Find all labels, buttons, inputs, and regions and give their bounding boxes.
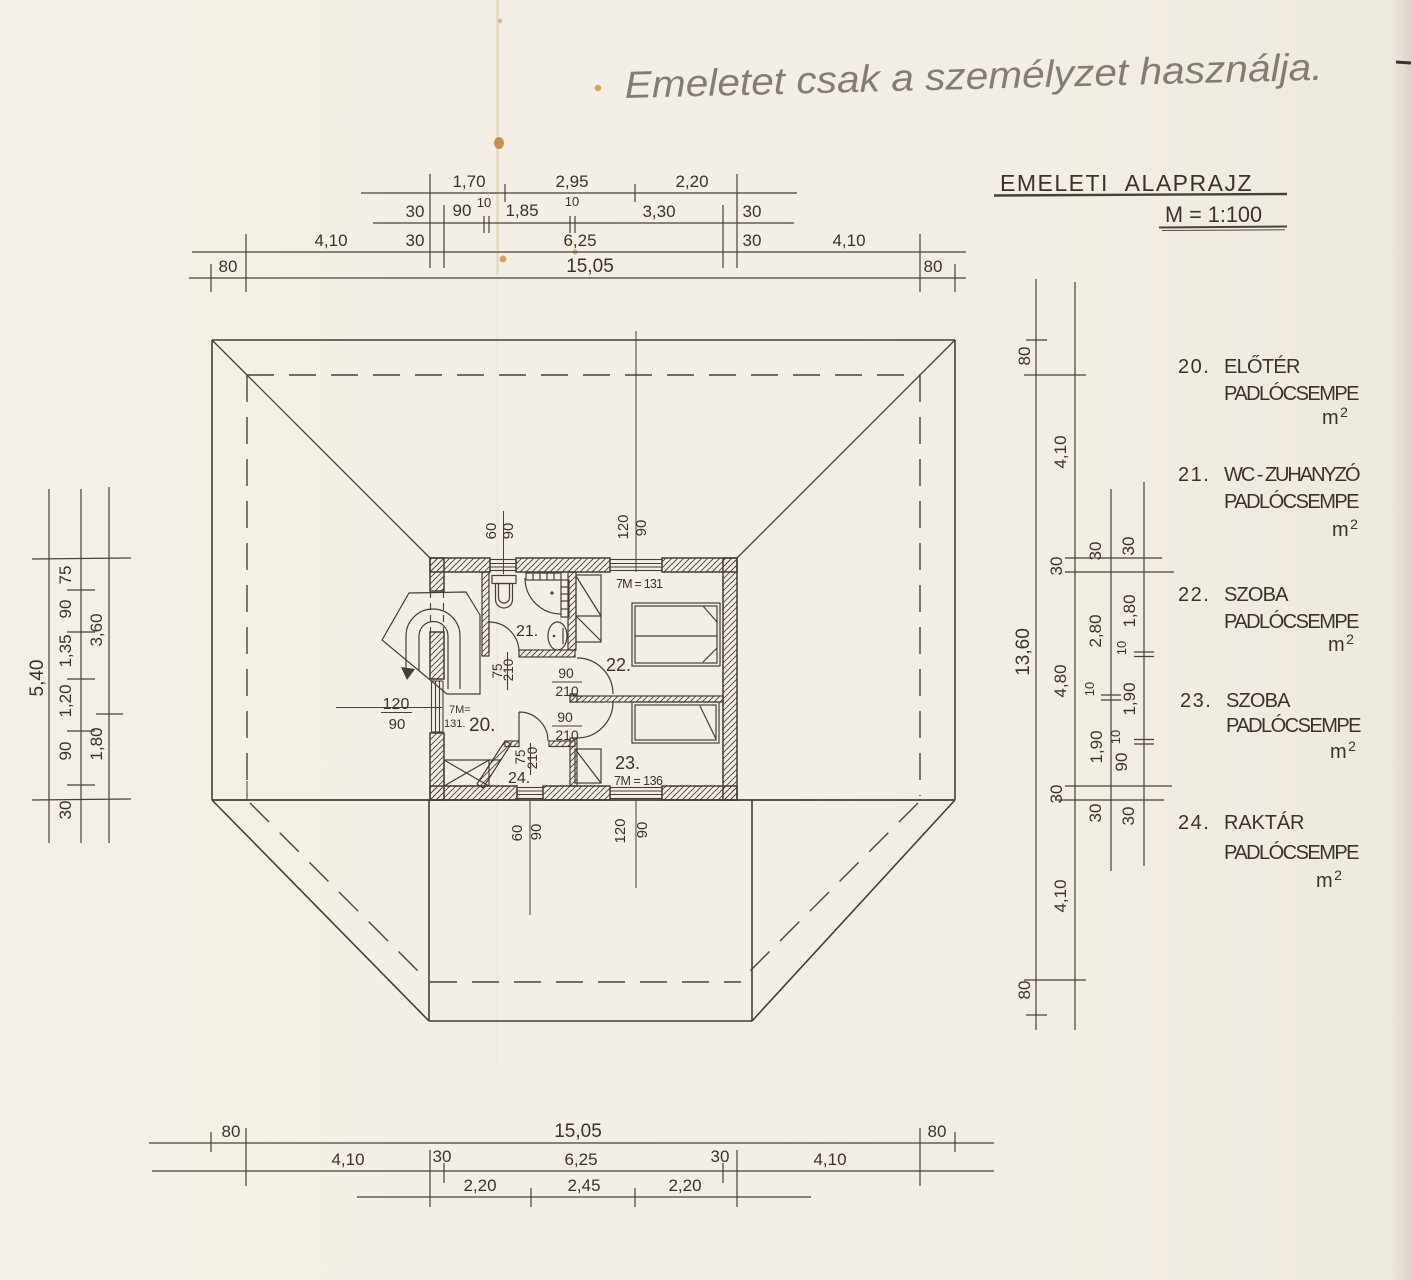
- svg-text:2,95: 2,95: [555, 172, 588, 191]
- svg-text:60: 60: [483, 523, 500, 540]
- svg-text:7M = 136: 7M = 136: [614, 774, 663, 788]
- svg-text:90: 90: [56, 742, 75, 761]
- svg-text:4,80: 4,80: [1051, 664, 1070, 697]
- svg-text:20.: 20.: [1178, 356, 1210, 378]
- svg-text:23.: 23.: [615, 753, 640, 773]
- svg-text:1,90: 1,90: [1087, 730, 1106, 763]
- svg-text:PADLÓCSEMPE: PADLÓCSEMPE: [1224, 382, 1361, 405]
- svg-text:10: 10: [1108, 730, 1123, 744]
- svg-text:6,25: 6,25: [564, 1150, 597, 1169]
- svg-text:3,30: 3,30: [642, 202, 675, 221]
- svg-text:SZOBA: SZOBA: [1224, 584, 1290, 606]
- svg-text:5,40: 5,40: [27, 660, 48, 697]
- svg-text:75: 75: [56, 566, 75, 585]
- svg-text:1,70: 1,70: [452, 172, 485, 191]
- svg-text:90: 90: [634, 822, 651, 839]
- svg-text:10: 10: [1082, 682, 1097, 696]
- svg-text:10: 10: [477, 195, 491, 210]
- svg-text:13,60: 13,60: [1013, 628, 1034, 676]
- svg-text:PADLÓCSEMPE: PADLÓCSEMPE: [1224, 610, 1361, 633]
- svg-text:90: 90: [633, 520, 650, 537]
- svg-text:4,10: 4,10: [813, 1150, 846, 1169]
- svg-text:RAKTÁR: RAKTÁR: [1224, 811, 1306, 834]
- svg-text:210: 210: [501, 659, 516, 682]
- svg-text:M = 1:100: M = 1:100: [1165, 202, 1262, 227]
- svg-text:210: 210: [525, 747, 540, 770]
- svg-text:30: 30: [406, 202, 425, 221]
- svg-text:90: 90: [1112, 753, 1131, 772]
- svg-text:2,80: 2,80: [1086, 614, 1105, 647]
- svg-text:80: 80: [1015, 981, 1034, 1000]
- svg-text:4,10: 4,10: [314, 231, 347, 250]
- svg-text:80: 80: [924, 257, 943, 276]
- svg-text:30: 30: [1086, 804, 1105, 823]
- svg-text:1,90: 1,90: [1120, 682, 1139, 715]
- svg-text:10: 10: [565, 194, 579, 209]
- svg-text:1,35: 1,35: [56, 634, 75, 667]
- svg-text:1,80: 1,80: [1120, 594, 1139, 627]
- svg-text:2,20: 2,20: [668, 1176, 701, 1195]
- svg-text:30: 30: [1047, 785, 1066, 804]
- svg-text:90: 90: [453, 201, 472, 220]
- svg-text:30: 30: [743, 202, 762, 221]
- svg-text:4,10: 4,10: [1051, 435, 1070, 468]
- svg-text:15,05: 15,05: [566, 256, 614, 277]
- svg-text:80: 80: [222, 1122, 241, 1141]
- svg-text:6,25: 6,25: [563, 231, 596, 250]
- svg-text:90: 90: [558, 665, 574, 681]
- svg-text:SZOBA: SZOBA: [1226, 690, 1292, 712]
- svg-text:PADLÓCSEMPE: PADLÓCSEMPE: [1226, 714, 1363, 737]
- svg-text:120: 120: [615, 514, 632, 539]
- svg-text:20.: 20.: [469, 715, 495, 736]
- svg-text:ELŐTÉR: ELŐTÉR: [1224, 355, 1302, 378]
- svg-text:4,10: 4,10: [331, 1150, 364, 1169]
- svg-text:2,45: 2,45: [567, 1176, 600, 1195]
- svg-text:60: 60: [509, 825, 526, 842]
- svg-text:23.: 23.: [1180, 690, 1212, 712]
- svg-text:PADLÓCSEMPE: PADLÓCSEMPE: [1224, 490, 1361, 513]
- svg-text:80: 80: [928, 1122, 947, 1141]
- svg-text:1,80: 1,80: [87, 727, 106, 760]
- svg-text:90: 90: [500, 523, 517, 540]
- svg-text:21.: 21.: [516, 623, 538, 640]
- svg-text:24.: 24.: [508, 770, 530, 787]
- svg-text:WC - ZUHANYZÓ: WC - ZUHANYZÓ: [1224, 463, 1362, 486]
- svg-text:PADLÓCSEMPE: PADLÓCSEMPE: [1224, 841, 1361, 864]
- svg-text:10: 10: [1114, 641, 1129, 655]
- svg-text:3,60: 3,60: [87, 613, 106, 646]
- svg-text:90: 90: [56, 600, 75, 619]
- svg-text:22.: 22.: [1178, 584, 1210, 606]
- svg-text:4,10: 4,10: [1051, 879, 1070, 912]
- svg-text:21.: 21.: [1178, 464, 1210, 486]
- svg-text:24.: 24.: [1178, 812, 1210, 834]
- svg-text:2,20: 2,20: [675, 172, 708, 191]
- svg-text:1,85: 1,85: [505, 201, 538, 220]
- svg-text:30: 30: [743, 231, 762, 250]
- svg-text:30: 30: [1119, 807, 1138, 826]
- svg-text:120: 120: [383, 696, 410, 713]
- svg-text:30: 30: [1047, 557, 1066, 576]
- svg-text:90: 90: [528, 824, 545, 841]
- svg-text:7M = 131: 7M = 131: [616, 577, 663, 591]
- svg-text:30: 30: [406, 231, 425, 250]
- svg-text:80: 80: [1015, 347, 1034, 366]
- svg-text:30: 30: [1119, 537, 1138, 556]
- svg-text:90: 90: [557, 709, 573, 725]
- svg-text:90: 90: [389, 716, 406, 733]
- svg-text:7M=: 7M=: [449, 704, 471, 716]
- svg-text:131.: 131.: [444, 718, 465, 730]
- svg-text:1,20: 1,20: [56, 684, 75, 717]
- svg-text:30: 30: [56, 801, 75, 820]
- svg-text:30: 30: [433, 1147, 452, 1166]
- svg-text:30: 30: [1086, 542, 1105, 561]
- svg-text:210: 210: [555, 727, 579, 743]
- svg-text:210: 210: [555, 683, 579, 699]
- svg-text:2,20: 2,20: [463, 1176, 496, 1195]
- svg-text:30: 30: [711, 1147, 730, 1166]
- svg-text:15,05: 15,05: [554, 1121, 602, 1142]
- svg-text:80: 80: [219, 257, 238, 276]
- svg-text:EMELETI ALAPRAJZ: EMELETI ALAPRAJZ: [1000, 170, 1253, 196]
- svg-text:120: 120: [612, 818, 629, 843]
- svg-text:4,10: 4,10: [832, 231, 865, 250]
- svg-text:22.: 22.: [606, 655, 631, 675]
